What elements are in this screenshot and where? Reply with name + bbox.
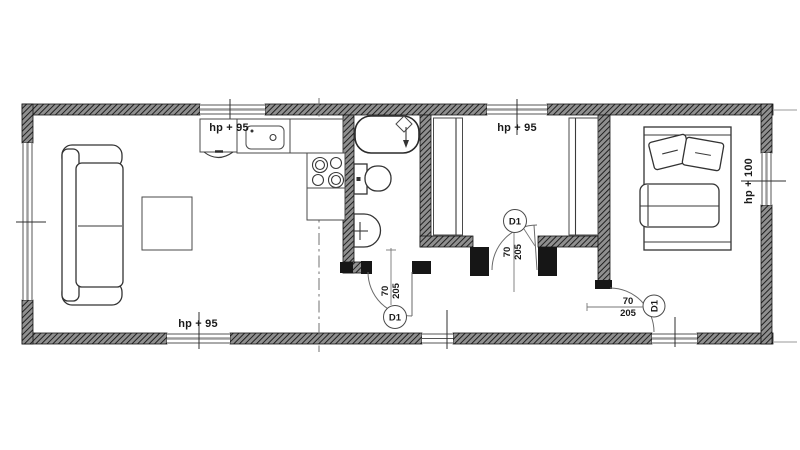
sill-label-top-2: hp + 95 [497, 122, 537, 134]
toilet-flush [357, 177, 361, 181]
bathroom [352, 116, 419, 247]
kitchen-counter [290, 119, 343, 153]
sink-tap [251, 130, 254, 133]
door-width: 70 [502, 247, 513, 258]
door-height: 205 [513, 243, 524, 260]
sofa [62, 145, 123, 305]
door-size-label: 70 205 [502, 243, 524, 260]
door-jamb [412, 261, 431, 274]
entrance-opening [422, 310, 453, 349]
door-bedroom: 70 205 D1 [587, 288, 665, 332]
door-width: 70 [380, 286, 391, 297]
sofa-seat [76, 163, 123, 287]
coffee-table [142, 197, 192, 250]
door-height: 205 [391, 282, 402, 299]
wall-left-1 [22, 104, 33, 143]
wall-right-2 [761, 205, 772, 344]
wall-top-2 [265, 104, 487, 115]
midroom-bottom-wall-right [538, 236, 600, 247]
door-jamb [538, 247, 557, 276]
toilet-bowl [365, 166, 391, 191]
kitchen-counter-lower [307, 188, 345, 220]
door-leaf [534, 225, 537, 270]
wall-cap [340, 262, 353, 273]
wardrobe-right [569, 118, 598, 235]
wall-right-1 [761, 104, 772, 153]
window-bottom-2 [652, 317, 697, 347]
wall-cap [361, 261, 372, 274]
sill-label-bottom-1: hp + 95 [178, 318, 218, 330]
door-tag: D1 [509, 217, 522, 228]
wall-left-2 [22, 300, 33, 344]
wall-bottom-2 [230, 333, 422, 344]
door-width: 70 [623, 296, 634, 307]
wall-bottom-1 [22, 333, 167, 344]
wall-cap [595, 280, 612, 289]
bedroom-wall [598, 115, 610, 282]
kitchen [200, 119, 345, 220]
window-left [16, 143, 46, 300]
door-bathroom: 70 205 D1 [368, 248, 412, 329]
kitchen-appliance-front [204, 152, 233, 158]
door-tag: D1 [650, 299, 661, 312]
door-size-label: 70 205 [380, 282, 402, 299]
bed [640, 127, 731, 250]
floor-plan-svg: 70 205 D1 70 205 D1 70 205 D1 hp + 95 hp… [0, 0, 800, 450]
pillow [682, 137, 724, 171]
wall-top-3 [547, 104, 773, 115]
bathroom-right-wall [420, 115, 431, 247]
wardrobe-left [434, 118, 463, 235]
door-height: 205 [620, 308, 637, 319]
door-jamb [470, 247, 489, 276]
wall-top-1 [22, 104, 200, 115]
sink-basin [246, 126, 284, 149]
midroom-bottom-wall-left [420, 236, 473, 247]
door-midroom: 70 205 D1 [492, 210, 537, 293]
sill-label-right: hp + 100 [743, 158, 755, 204]
floor-plan-canvas: 70 205 D1 70 205 D1 70 205 D1 hp + 95 hp… [0, 0, 800, 450]
wall-bottom-3 [453, 333, 652, 344]
sill-label-top-1: hp + 95 [209, 122, 249, 134]
door-leader-diag [524, 229, 535, 246]
door-tag: D1 [389, 313, 402, 324]
